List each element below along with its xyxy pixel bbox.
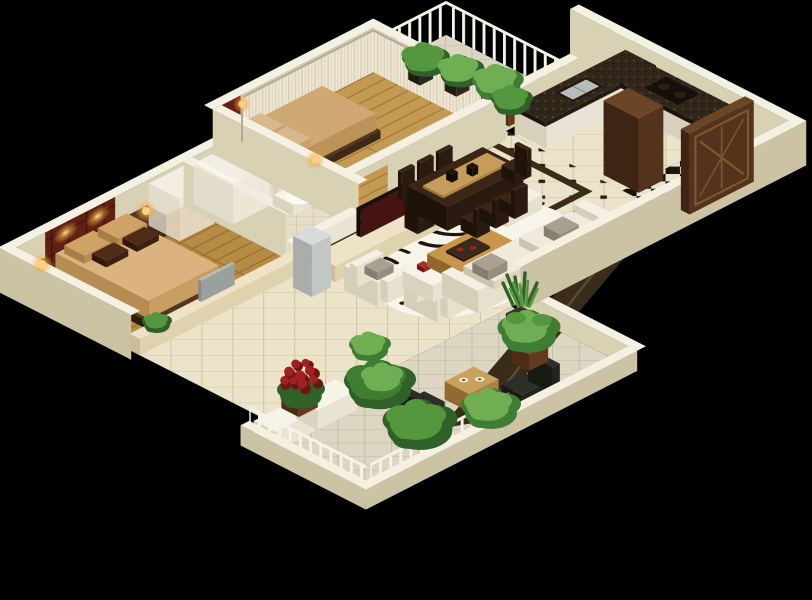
table-vase [467, 163, 479, 177]
dining-chair-back-face-s [473, 209, 477, 238]
armchair-arm-face-s [381, 278, 388, 303]
dining-chair-back [511, 183, 528, 219]
lamp-shade [142, 207, 150, 215]
flat-screen-tv-face-s [356, 208, 360, 238]
apartment-3d-render: 3D isometric apartment floor plan render [0, 0, 812, 600]
dining-chair-back-face-s [398, 171, 402, 200]
air-conditioner-unit [293, 226, 331, 297]
dining-chair-back-face-s [492, 199, 496, 228]
bedroom2-lamp-glow [305, 150, 325, 170]
air-conditioner-unit-face-f [312, 236, 331, 297]
air-conditioner-unit-face-s [293, 236, 312, 297]
nightstand-lamp-glow-left [31, 253, 53, 275]
lamp-shade [38, 260, 46, 268]
dining-chair-back-face-s [511, 190, 515, 219]
armchair-arm-face-s [350, 263, 357, 288]
big-leaf [506, 312, 526, 324]
kitchen-tall-cabinet [604, 88, 664, 193]
kitchen-tall-cabinet-face-f [639, 106, 664, 193]
render-stage: 3D isometric apartment floor plan render [0, 0, 812, 600]
nightstand-lamp-glow-right [135, 200, 157, 222]
table-vase [446, 168, 458, 182]
big-leaf [532, 314, 552, 326]
dining-chair-back [515, 142, 532, 178]
lamp-shade [312, 157, 319, 164]
dining-chair-back-face-f [528, 149, 532, 178]
floor-lamp-shade [239, 101, 246, 108]
carved-entry-door-face-s [681, 129, 690, 214]
bedroom-gray-monitor-face-s [198, 279, 201, 302]
